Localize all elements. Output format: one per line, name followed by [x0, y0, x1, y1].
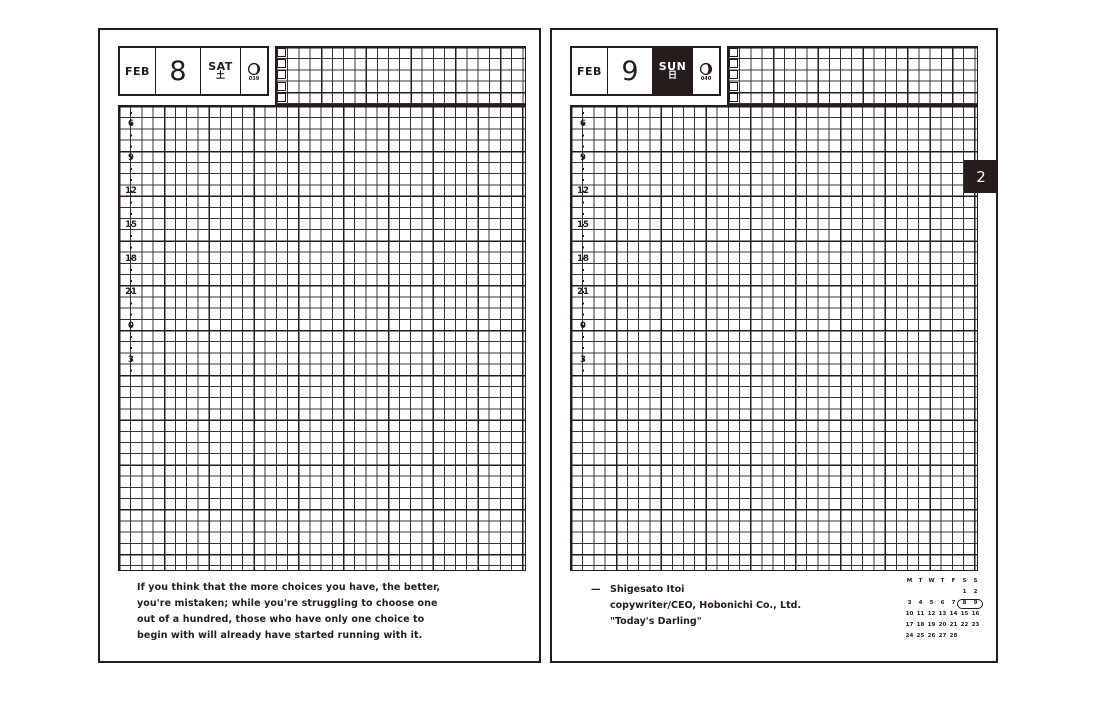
hour-tick-dots	[130, 112, 132, 378]
hour-label: 15	[123, 220, 139, 231]
calendar-day-cell	[970, 631, 981, 642]
calendar-day-cell: 23	[970, 620, 981, 631]
day-number: 9	[607, 48, 652, 94]
planner-page-right: FEB 9 SUN 日 040 6 9 12 15 18 21 0 3 2 — …	[550, 28, 998, 663]
calendar-day-cell: 19	[926, 620, 937, 631]
quote-line: you're mistaken; while you're struggling…	[137, 596, 482, 612]
weekday-header-cell: F	[948, 576, 959, 587]
calendar-day-cell: 25	[915, 631, 926, 642]
top-grid-strip	[275, 46, 526, 105]
checkbox-icon	[277, 59, 286, 68]
weekday-header-cell: W	[926, 576, 937, 587]
current-days-highlight-oval	[957, 599, 983, 609]
calendar-day-cell: 17	[904, 620, 915, 631]
hour-label: 21	[123, 287, 139, 298]
calendar-day-cell: 2	[970, 587, 981, 598]
checkbox-icon	[277, 82, 286, 91]
checkbox-icon	[277, 48, 286, 57]
month-label: FEB	[572, 48, 607, 94]
date-header: FEB 8 SAT 土 039	[118, 46, 269, 96]
calendar-day-cell: 5	[926, 598, 937, 609]
top-grid-strip	[727, 46, 978, 105]
calendar-day-cell: 22	[959, 620, 970, 631]
mini-month-calendar: M T W T F S S 1 2 3 4 5 6 7 8 9 10	[904, 576, 982, 642]
calendar-day-cell	[915, 587, 926, 598]
calendar-day-cell: 15	[959, 609, 970, 620]
calendar-day-cell: 16	[970, 609, 981, 620]
hour-label: 0	[123, 321, 139, 332]
hour-label: 0	[575, 321, 591, 332]
calendar-day-cell: 28	[948, 631, 959, 642]
hour-label: 18	[123, 254, 139, 265]
checkbox-icon	[277, 93, 286, 102]
month-index-tab: 2	[964, 160, 998, 193]
weekday-header-cell: S	[970, 576, 981, 587]
calendar-day-cell: 11	[915, 609, 926, 620]
weekday-kanji: 土	[216, 72, 225, 81]
calendar-day-cell: 4	[915, 598, 926, 609]
calendar-day-cell: 26	[926, 631, 937, 642]
weekday-cell: SAT 土	[200, 48, 240, 94]
hour-label: 3	[123, 355, 139, 366]
quote-line: begin with will already have started run…	[137, 628, 482, 644]
hour-label: 18	[575, 254, 591, 265]
attribution-dash: —	[591, 582, 605, 598]
attribution-source: "Today's Darling"	[610, 614, 801, 630]
calendar-day-cell	[948, 587, 959, 598]
calendar-day-cell	[926, 587, 937, 598]
calendar-day-cell: 14	[948, 609, 959, 620]
quote-attribution: — Shigesato Itoi copywriter/CEO, Hobonic…	[591, 582, 801, 630]
checkbox-icon	[729, 59, 738, 68]
hour-label: 6	[123, 119, 139, 130]
weekday-header-cell: M	[904, 576, 915, 587]
day-number: 8	[155, 48, 200, 94]
moon-phase-icon	[247, 62, 261, 76]
weekday-kanji: 日	[668, 72, 677, 81]
calendar-day-cell: 10	[904, 609, 915, 620]
date-header: FEB 9 SUN 日 040	[570, 46, 721, 96]
hour-label: 15	[575, 220, 591, 231]
checkbox-icon	[729, 93, 738, 102]
attribution-author: Shigesato Itoi	[610, 582, 684, 598]
weekday-header-cell: T	[937, 576, 948, 587]
checkbox-icon	[277, 70, 286, 79]
calendar-day-cell: 3	[904, 598, 915, 609]
weekday-cell-sunday: SUN 日	[652, 48, 692, 94]
calendar-day-cell: 12	[926, 609, 937, 620]
hour-label: 9	[123, 153, 139, 164]
day-of-year: 039	[249, 77, 259, 81]
calendar-day-cell: 24	[904, 631, 915, 642]
hour-label: 12	[575, 186, 591, 197]
hour-tick-dots	[582, 112, 584, 378]
hour-label: 9	[575, 153, 591, 164]
attribution-title: copywriter/CEO, Hobonichi Co., Ltd.	[610, 598, 801, 614]
checkbox-icon	[729, 48, 738, 57]
month-label: FEB	[120, 48, 155, 94]
calendar-day-cell: 27	[937, 631, 948, 642]
quote-line: If you think that the more choices you h…	[137, 580, 482, 596]
checkbox-icon	[729, 82, 738, 91]
weekday-header-cell: T	[915, 576, 926, 587]
calendar-day-cell: 13	[937, 609, 948, 620]
moon-phase-icon	[699, 62, 713, 76]
day-grid	[570, 105, 978, 571]
calendar-week-row: 1 2	[904, 587, 982, 598]
calendar-week-row: 17 18 19 20 21 22 23	[904, 620, 982, 631]
calendar-week-row: 24 25 26 27 28	[904, 631, 982, 642]
hour-label: 6	[575, 119, 591, 130]
daily-quote: If you think that the more choices you h…	[137, 580, 482, 644]
calendar-day-cell	[959, 631, 970, 642]
calendar-day-cell: 20	[937, 620, 948, 631]
day-of-year: 040	[701, 77, 711, 81]
calendar-day-cell	[937, 587, 948, 598]
calendar-day-cell: 6	[937, 598, 948, 609]
moon-cell: 039	[240, 48, 267, 94]
checkbox-icon	[729, 70, 738, 79]
calendar-weekday-header: M T W T F S S	[904, 576, 982, 587]
planner-page-left: FEB 8 SAT 土 039 6 9 12 15 18 21 0 3 If y…	[98, 28, 541, 663]
calendar-day-cell: 1	[959, 587, 970, 598]
moon-cell: 040	[692, 48, 719, 94]
hour-label: 21	[575, 287, 591, 298]
hour-label: 3	[575, 355, 591, 366]
calendar-day-cell: 18	[915, 620, 926, 631]
calendar-day-cell	[904, 587, 915, 598]
day-grid	[118, 105, 526, 571]
quote-line: out of a hundred, those who have only on…	[137, 612, 482, 628]
weekday-header-cell: S	[959, 576, 970, 587]
calendar-week-row: 10 11 12 13 14 15 16	[904, 609, 982, 620]
calendar-day-cell: 21	[948, 620, 959, 631]
hour-label: 12	[123, 186, 139, 197]
